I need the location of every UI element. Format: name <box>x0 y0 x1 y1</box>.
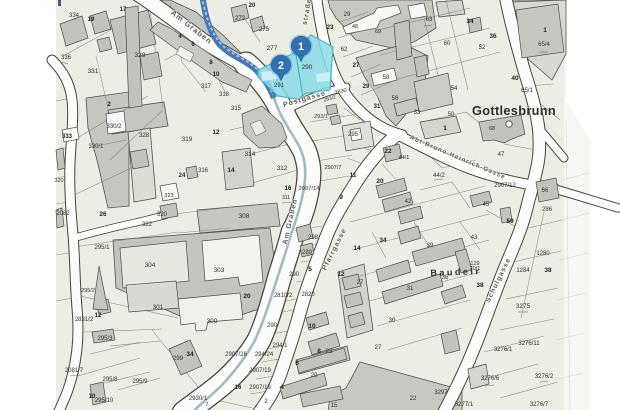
svg-text:14: 14 <box>227 167 235 174</box>
svg-text:295/1: 295/1 <box>94 245 110 251</box>
svg-text:295/3: 295/3 <box>97 336 113 342</box>
svg-text:286: 286 <box>542 207 553 213</box>
svg-text:1: 1 <box>298 41 304 53</box>
svg-text:303: 303 <box>214 267 225 274</box>
svg-text:34: 34 <box>186 351 194 358</box>
svg-text:2831/2: 2831/2 <box>75 317 94 323</box>
svg-text:314: 314 <box>245 151 256 158</box>
svg-text:54: 54 <box>451 86 458 92</box>
svg-text:43: 43 <box>471 235 478 241</box>
svg-text:27: 27 <box>353 63 360 69</box>
svg-text:23: 23 <box>326 349 333 355</box>
svg-text:31: 31 <box>407 286 414 292</box>
svg-text:319: 319 <box>182 136 193 143</box>
svg-text:65/1: 65/1 <box>521 88 533 94</box>
svg-text:295/10: 295/10 <box>95 398 114 404</box>
svg-text:291: 291 <box>274 83 285 89</box>
svg-text:295: 295 <box>348 132 359 138</box>
svg-text:20: 20 <box>311 373 318 379</box>
svg-text:5: 5 <box>308 266 312 273</box>
svg-text:30: 30 <box>389 318 396 324</box>
svg-text:44/1: 44/1 <box>399 155 410 161</box>
svg-text:2907/12: 2907/12 <box>494 183 516 189</box>
svg-text:322: 322 <box>142 222 153 228</box>
svg-text:29: 29 <box>363 84 370 90</box>
svg-text:290: 290 <box>267 323 278 329</box>
svg-text:331: 331 <box>88 68 99 75</box>
svg-text:294/24: 294/24 <box>255 352 274 358</box>
svg-text:315: 315 <box>231 106 242 112</box>
svg-text:38: 38 <box>544 267 552 274</box>
svg-text:20: 20 <box>249 3 256 9</box>
svg-text:26: 26 <box>99 211 107 218</box>
svg-text:58: 58 <box>383 75 390 81</box>
svg-text:36: 36 <box>489 33 497 40</box>
svg-text:3276/11: 3276/11 <box>518 341 540 347</box>
svg-text:12: 12 <box>212 129 220 136</box>
svg-text:17: 17 <box>120 7 127 13</box>
svg-text:289: 289 <box>302 250 313 256</box>
svg-text:2907/16: 2907/16 <box>249 385 271 391</box>
svg-text:56: 56 <box>392 96 399 102</box>
svg-text:1284: 1284 <box>516 268 530 274</box>
svg-text:2907/19: 2907/19 <box>249 368 271 374</box>
svg-text:294/1: 294/1 <box>272 343 288 349</box>
svg-text:295/2: 295/2 <box>81 288 95 294</box>
svg-text:328: 328 <box>139 133 150 139</box>
svg-text:2907/7: 2907/7 <box>325 165 342 171</box>
svg-text:69: 69 <box>375 29 381 35</box>
svg-text:6: 6 <box>295 360 299 367</box>
svg-text:2820: 2820 <box>301 292 315 298</box>
svg-text:336: 336 <box>61 55 72 61</box>
svg-text:20: 20 <box>376 178 384 185</box>
svg-text:1280: 1280 <box>536 251 550 257</box>
svg-text:52: 52 <box>479 45 486 51</box>
svg-text:275: 275 <box>259 27 270 33</box>
svg-text:2907/14: 2907/14 <box>299 186 321 192</box>
svg-text:333: 333 <box>62 134 73 140</box>
svg-text:15: 15 <box>331 403 338 409</box>
svg-text:334: 334 <box>69 13 80 19</box>
svg-text:16: 16 <box>285 186 292 192</box>
svg-text:42: 42 <box>405 199 412 205</box>
svg-text:273: 273 <box>235 16 246 22</box>
svg-text:3276/1: 3276/1 <box>494 347 513 353</box>
svg-text:34: 34 <box>466 18 474 25</box>
svg-text:329: 329 <box>135 52 146 59</box>
svg-text:290: 290 <box>302 64 313 71</box>
svg-text:298: 298 <box>308 235 319 241</box>
svg-text:295/9: 295/9 <box>132 379 148 385</box>
svg-text:7: 7 <box>205 402 208 408</box>
svg-text:68: 68 <box>489 126 495 132</box>
svg-text:40: 40 <box>511 75 519 82</box>
svg-text:27: 27 <box>357 280 364 286</box>
svg-text:2810/2: 2810/2 <box>274 293 293 299</box>
svg-text:16: 16 <box>235 385 242 391</box>
svg-text:Gottlesbrunn: Gottlesbrunn <box>472 103 556 118</box>
svg-text:10: 10 <box>308 323 316 330</box>
svg-text:2082: 2082 <box>56 211 70 217</box>
svg-text:3276/6: 3276/6 <box>481 376 500 382</box>
svg-text:12: 12 <box>95 313 102 319</box>
svg-text:63: 63 <box>426 17 433 23</box>
svg-text:Baudeir: Baudeir <box>430 266 481 278</box>
svg-text:3275: 3275 <box>516 303 531 310</box>
svg-text:9: 9 <box>339 194 343 201</box>
svg-text:330/1: 330/1 <box>88 144 104 150</box>
svg-text:62: 62 <box>341 47 348 53</box>
svg-text:318: 318 <box>219 92 230 98</box>
svg-text:3297: 3297 <box>434 390 448 396</box>
svg-text:316: 316 <box>198 168 209 174</box>
svg-text:323: 323 <box>164 193 173 199</box>
svg-text:59: 59 <box>506 218 514 225</box>
svg-text:38: 38 <box>476 282 484 289</box>
svg-text:23: 23 <box>327 25 334 31</box>
svg-text:320: 320 <box>54 178 63 184</box>
svg-text:65/4: 65/4 <box>538 42 550 48</box>
svg-text:299: 299 <box>173 356 184 362</box>
svg-text:2: 2 <box>278 60 284 72</box>
svg-text:304: 304 <box>145 262 156 269</box>
svg-text:60: 60 <box>444 41 451 47</box>
svg-text:14: 14 <box>353 245 361 252</box>
svg-text:312: 312 <box>277 165 288 172</box>
svg-text:27: 27 <box>375 345 382 351</box>
svg-text:11: 11 <box>350 172 357 179</box>
svg-text:1: 1 <box>443 125 447 132</box>
svg-text:10: 10 <box>213 72 220 78</box>
svg-text:308: 308 <box>239 213 250 220</box>
svg-text:300: 300 <box>207 318 218 325</box>
svg-text:29: 29 <box>344 12 351 18</box>
svg-text:33: 33 <box>414 110 421 116</box>
svg-text:320: 320 <box>157 212 168 218</box>
svg-text:22: 22 <box>410 396 417 402</box>
svg-text:277: 277 <box>267 45 278 52</box>
svg-text:45: 45 <box>483 202 490 208</box>
svg-text:50: 50 <box>448 112 455 118</box>
svg-text:293/1: 293/1 <box>314 114 328 120</box>
svg-text:2907/26: 2907/26 <box>225 352 247 358</box>
svg-text:311: 311 <box>282 195 290 201</box>
svg-text:8: 8 <box>317 348 321 355</box>
svg-text:2: 2 <box>107 101 111 108</box>
svg-text:48: 48 <box>352 24 358 30</box>
svg-text:1: 1 <box>543 27 547 34</box>
svg-text:295/8: 295/8 <box>102 377 118 383</box>
svg-text:39: 39 <box>427 243 434 249</box>
svg-text:330/2: 330/2 <box>106 124 122 130</box>
svg-text:3277/1: 3277/1 <box>455 402 474 408</box>
svg-text:22: 22 <box>384 148 392 155</box>
svg-text:47: 47 <box>498 152 505 158</box>
svg-text:20: 20 <box>243 293 251 300</box>
svg-text:66: 66 <box>542 188 549 194</box>
svg-text:290: 290 <box>289 272 300 278</box>
svg-text:12: 12 <box>337 271 345 278</box>
svg-text:2081/7: 2081/7 <box>65 368 84 374</box>
svg-text:31: 31 <box>374 104 381 110</box>
svg-text:4: 4 <box>280 384 284 391</box>
svg-text:34: 34 <box>379 237 387 244</box>
svg-text:317: 317 <box>201 84 212 90</box>
svg-text:3276/7: 3276/7 <box>530 402 549 408</box>
svg-text:24: 24 <box>179 173 186 179</box>
svg-text:3276/2: 3276/2 <box>535 374 554 380</box>
svg-text:19: 19 <box>88 17 95 23</box>
svg-text:301: 301 <box>153 304 164 311</box>
svg-text:44/2: 44/2 <box>433 173 445 179</box>
